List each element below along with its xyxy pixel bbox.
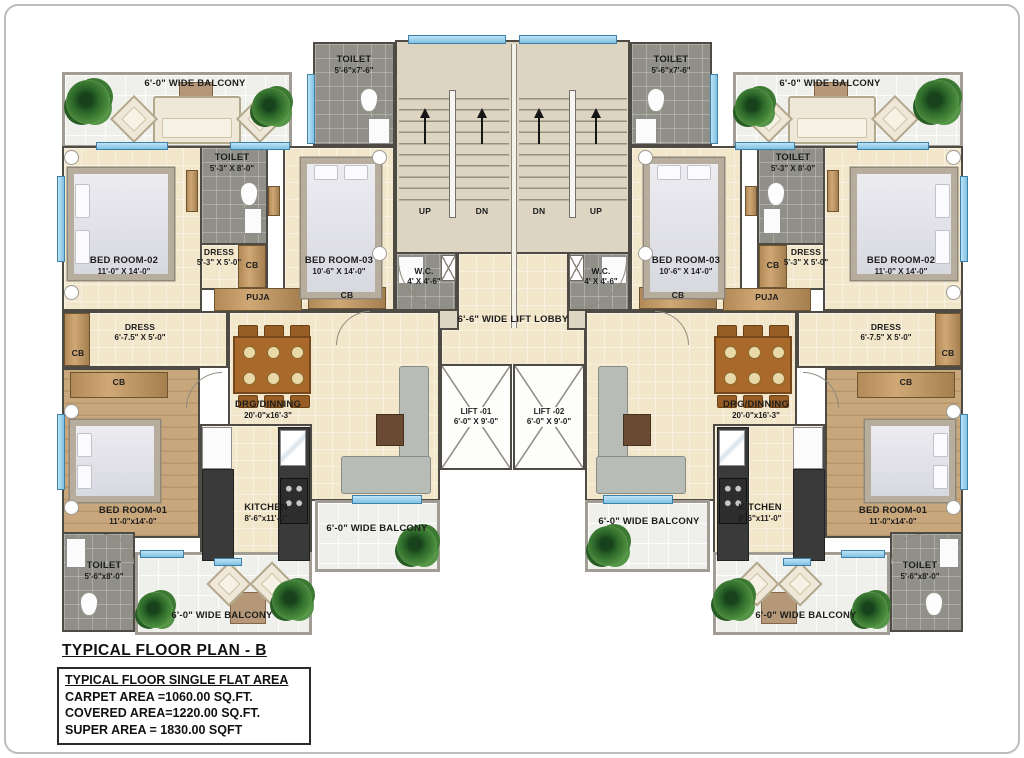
nightstand-icon xyxy=(946,150,961,165)
window xyxy=(408,35,506,44)
covered-area-line: COVERED AREA=1220.00 SQ.FT. xyxy=(65,705,303,722)
dining-table-icon xyxy=(233,336,311,394)
label-cb: CB xyxy=(72,348,85,359)
plant-icon xyxy=(735,88,773,126)
nightstand-icon xyxy=(64,150,79,165)
toilet-bowl-icon xyxy=(647,88,665,112)
window xyxy=(710,74,718,144)
label-bedroom-03-right: BED ROOM-0310'-6" X 14'-0" xyxy=(652,255,720,277)
label-cb: CB xyxy=(246,260,259,271)
label-balcony-top-left: 6'-0" WIDE BALCONY xyxy=(144,78,245,90)
dining-table-icon xyxy=(714,336,792,394)
coffee-table-icon xyxy=(376,414,404,446)
plate-icon xyxy=(291,346,304,359)
label-balcony-bottom-right: 6'-0" WIDE BALCONY xyxy=(755,610,856,622)
plate-icon xyxy=(267,372,280,385)
sink-icon xyxy=(719,430,745,466)
washbasin-icon xyxy=(244,208,262,234)
plate-icon xyxy=(291,372,304,385)
stair-handrail-right xyxy=(569,90,576,218)
stair-arrow-icon xyxy=(595,112,597,144)
stair-arrow-icon xyxy=(481,112,483,144)
label-cb: CB xyxy=(672,290,685,301)
nightstand-icon xyxy=(946,500,961,515)
label-wc-right: W.C.4' X 4'-6" xyxy=(584,266,617,287)
label-toilet-top-right: TOILET5'-6"x7'-6" xyxy=(652,54,691,76)
label-dress-master-right: DRESS5'-3" X 5'-0" xyxy=(784,247,828,268)
label-puja-left: PUJA xyxy=(246,292,269,303)
fridge-icon xyxy=(793,427,823,469)
label-bedroom-01-left: BED ROOM-0111'-0"x14'-0" xyxy=(99,505,167,527)
nightstand-icon xyxy=(64,500,79,515)
bed-icon xyxy=(301,158,381,298)
label-bedroom-03-left: BED ROOM-0310'-6" X 14'-0" xyxy=(305,255,373,277)
wardrobe-icon xyxy=(745,186,757,216)
washbasin-icon xyxy=(368,118,390,144)
plate-icon xyxy=(724,346,737,359)
label-balcony-mid-left: 6'-0" WIDE BALCONY xyxy=(326,523,427,535)
label-bedroom-02-left: BED ROOM-0211'-0" X 14'-0" xyxy=(90,255,158,277)
stair-arrow-icon xyxy=(538,112,540,144)
toilet-bowl-icon xyxy=(240,182,258,206)
label-bedroom-02-right: BED ROOM-0211'-0" X 14'-0" xyxy=(867,255,935,277)
window xyxy=(857,142,929,150)
label-lift-lobby: 6'-6" WIDE LIFT LOBBY xyxy=(458,314,569,326)
stair-handrail-left xyxy=(449,90,456,218)
label-dress-bed1-left: DRESS6'-7.5" X 5'-0" xyxy=(115,322,166,343)
nightstand-icon xyxy=(946,285,961,300)
window xyxy=(960,176,968,262)
nightstand-icon xyxy=(946,404,961,419)
label-wc-left: W.C.4' X 4'-6" xyxy=(407,266,440,287)
lift-lobby-extension xyxy=(440,330,586,364)
window xyxy=(230,142,290,150)
label-kitchen-right: KITCHEN8'-6"x11'-0" xyxy=(738,502,782,524)
washbasin-icon xyxy=(939,538,959,568)
label-kitchen-left: KITCHEN8'-6"x11'-0" xyxy=(244,502,288,524)
stair-arrow-icon xyxy=(424,112,426,144)
label-drg-dinning-right: DRG/DINNING20'-0"x16'-3" xyxy=(723,399,789,421)
nightstand-icon xyxy=(638,150,653,165)
toilet-bowl-icon xyxy=(767,182,785,206)
label-puja-right: PUJA xyxy=(755,292,778,303)
window xyxy=(519,35,617,44)
window xyxy=(96,142,168,150)
label-cb: CB xyxy=(341,290,354,301)
stair-center-wall xyxy=(511,44,517,328)
label-dress-master-left: DRESS5'-3" X 5'-0" xyxy=(197,247,241,268)
plate-icon xyxy=(748,372,761,385)
label-cb: CB xyxy=(113,377,126,388)
wardrobe-icon xyxy=(827,170,839,212)
nightstand-icon xyxy=(64,285,79,300)
area-summary-box: TYPICAL FLOOR SINGLE FLAT AREA CARPET AR… xyxy=(57,667,311,745)
page-title: TYPICAL FLOOR PLAN - B xyxy=(62,642,267,660)
plant-icon xyxy=(588,526,628,566)
window xyxy=(783,558,811,566)
window xyxy=(57,176,65,262)
plant-icon xyxy=(852,592,888,628)
toilet-bowl-icon xyxy=(80,592,98,616)
washbasin-icon xyxy=(635,118,657,144)
plant-icon xyxy=(252,88,290,126)
plate-icon xyxy=(267,346,280,359)
plate-icon xyxy=(243,346,256,359)
floor-plan-canvas: UP DN DN UP LIFT -016'-0" X 9'-0" xyxy=(0,0,1024,758)
label-stair-dn-left: DN xyxy=(476,206,489,217)
toilet-bowl-icon xyxy=(925,592,943,616)
fridge-icon xyxy=(202,427,232,469)
plant-icon xyxy=(66,80,110,124)
window xyxy=(735,142,795,150)
washbasin-icon xyxy=(763,208,781,234)
plant-icon xyxy=(915,80,959,124)
label-toilet-master-left: TOILET5'-3" X 8'-0" xyxy=(210,152,254,174)
window xyxy=(140,550,184,558)
label-stair-dn-right: DN xyxy=(533,206,546,217)
sink-icon xyxy=(280,430,306,466)
sofa-icon xyxy=(788,96,876,144)
label-drg-dinning-left: DRG/DINNING20'-0"x16'-3" xyxy=(235,399,301,421)
bed-icon xyxy=(644,158,724,298)
label-toilet-bed1-left: TOILET5'-6"x8'-0" xyxy=(85,560,124,582)
area-box-heading: TYPICAL FLOOR SINGLE FLAT AREA xyxy=(65,672,303,689)
label-bedroom-01-right: BED ROOM-0111'-0"x14'-0" xyxy=(859,505,927,527)
label-cb: CB xyxy=(767,260,780,271)
bed-icon xyxy=(865,420,955,502)
label-cb: CB xyxy=(900,377,913,388)
plant-icon xyxy=(272,580,312,620)
nightstand-icon xyxy=(64,404,79,419)
label-toilet-top-left: TOILET5'-6"x7'-6" xyxy=(335,54,374,76)
label-balcony-mid-right: 6'-0" WIDE BALCONY xyxy=(598,516,699,528)
sofa-icon xyxy=(341,456,431,494)
label-cb: CB xyxy=(942,348,955,359)
kitchen-counter xyxy=(793,469,825,561)
window xyxy=(841,550,885,558)
lift-02: LIFT -026'-0" X 9'-0" xyxy=(513,364,585,470)
plate-icon xyxy=(772,346,785,359)
plate-icon xyxy=(724,372,737,385)
window xyxy=(214,558,242,566)
washbasin-icon xyxy=(66,538,86,568)
plate-icon xyxy=(772,372,785,385)
label-stair-up-left: UP xyxy=(419,206,431,217)
sofa-icon xyxy=(153,96,241,144)
plate-icon xyxy=(748,346,761,359)
window xyxy=(960,414,968,490)
nightstand-icon xyxy=(372,246,387,261)
wardrobe-icon xyxy=(186,170,198,212)
toilet-bowl-icon xyxy=(360,88,378,112)
plate-icon xyxy=(243,372,256,385)
label-dress-bed1-right: DRESS6'-7.5" X 5'-0" xyxy=(861,322,912,343)
sofa-icon xyxy=(596,456,686,494)
label-toilet-master-right: TOILET5'-3" X 8'-0" xyxy=(771,152,815,174)
plant-icon xyxy=(713,580,753,620)
lift-01: LIFT -016'-0" X 9'-0" xyxy=(440,364,512,470)
window xyxy=(307,74,315,144)
label-stair-up-right: UP xyxy=(590,206,602,217)
kitchen-counter xyxy=(202,469,234,561)
window xyxy=(57,414,65,490)
bed-icon xyxy=(70,420,160,502)
label-balcony-top-right: 6'-0" WIDE BALCONY xyxy=(779,78,880,90)
super-area-line: SUPER AREA = 1830.00 SQFT xyxy=(65,722,303,739)
nightstand-icon xyxy=(372,150,387,165)
label-balcony-bottom-left: 6'-0" WIDE BALCONY xyxy=(171,610,272,622)
coffee-table-icon xyxy=(623,414,651,446)
window xyxy=(603,495,673,504)
window xyxy=(352,495,422,504)
plant-icon xyxy=(137,592,173,628)
label-toilet-bed1-right: TOILET5'-6"x8'-0" xyxy=(901,560,940,582)
wardrobe-icon xyxy=(268,186,280,216)
carpet-area-line: CARPET AREA =1060.00 SQ.FT. xyxy=(65,689,303,706)
nightstand-icon xyxy=(638,246,653,261)
